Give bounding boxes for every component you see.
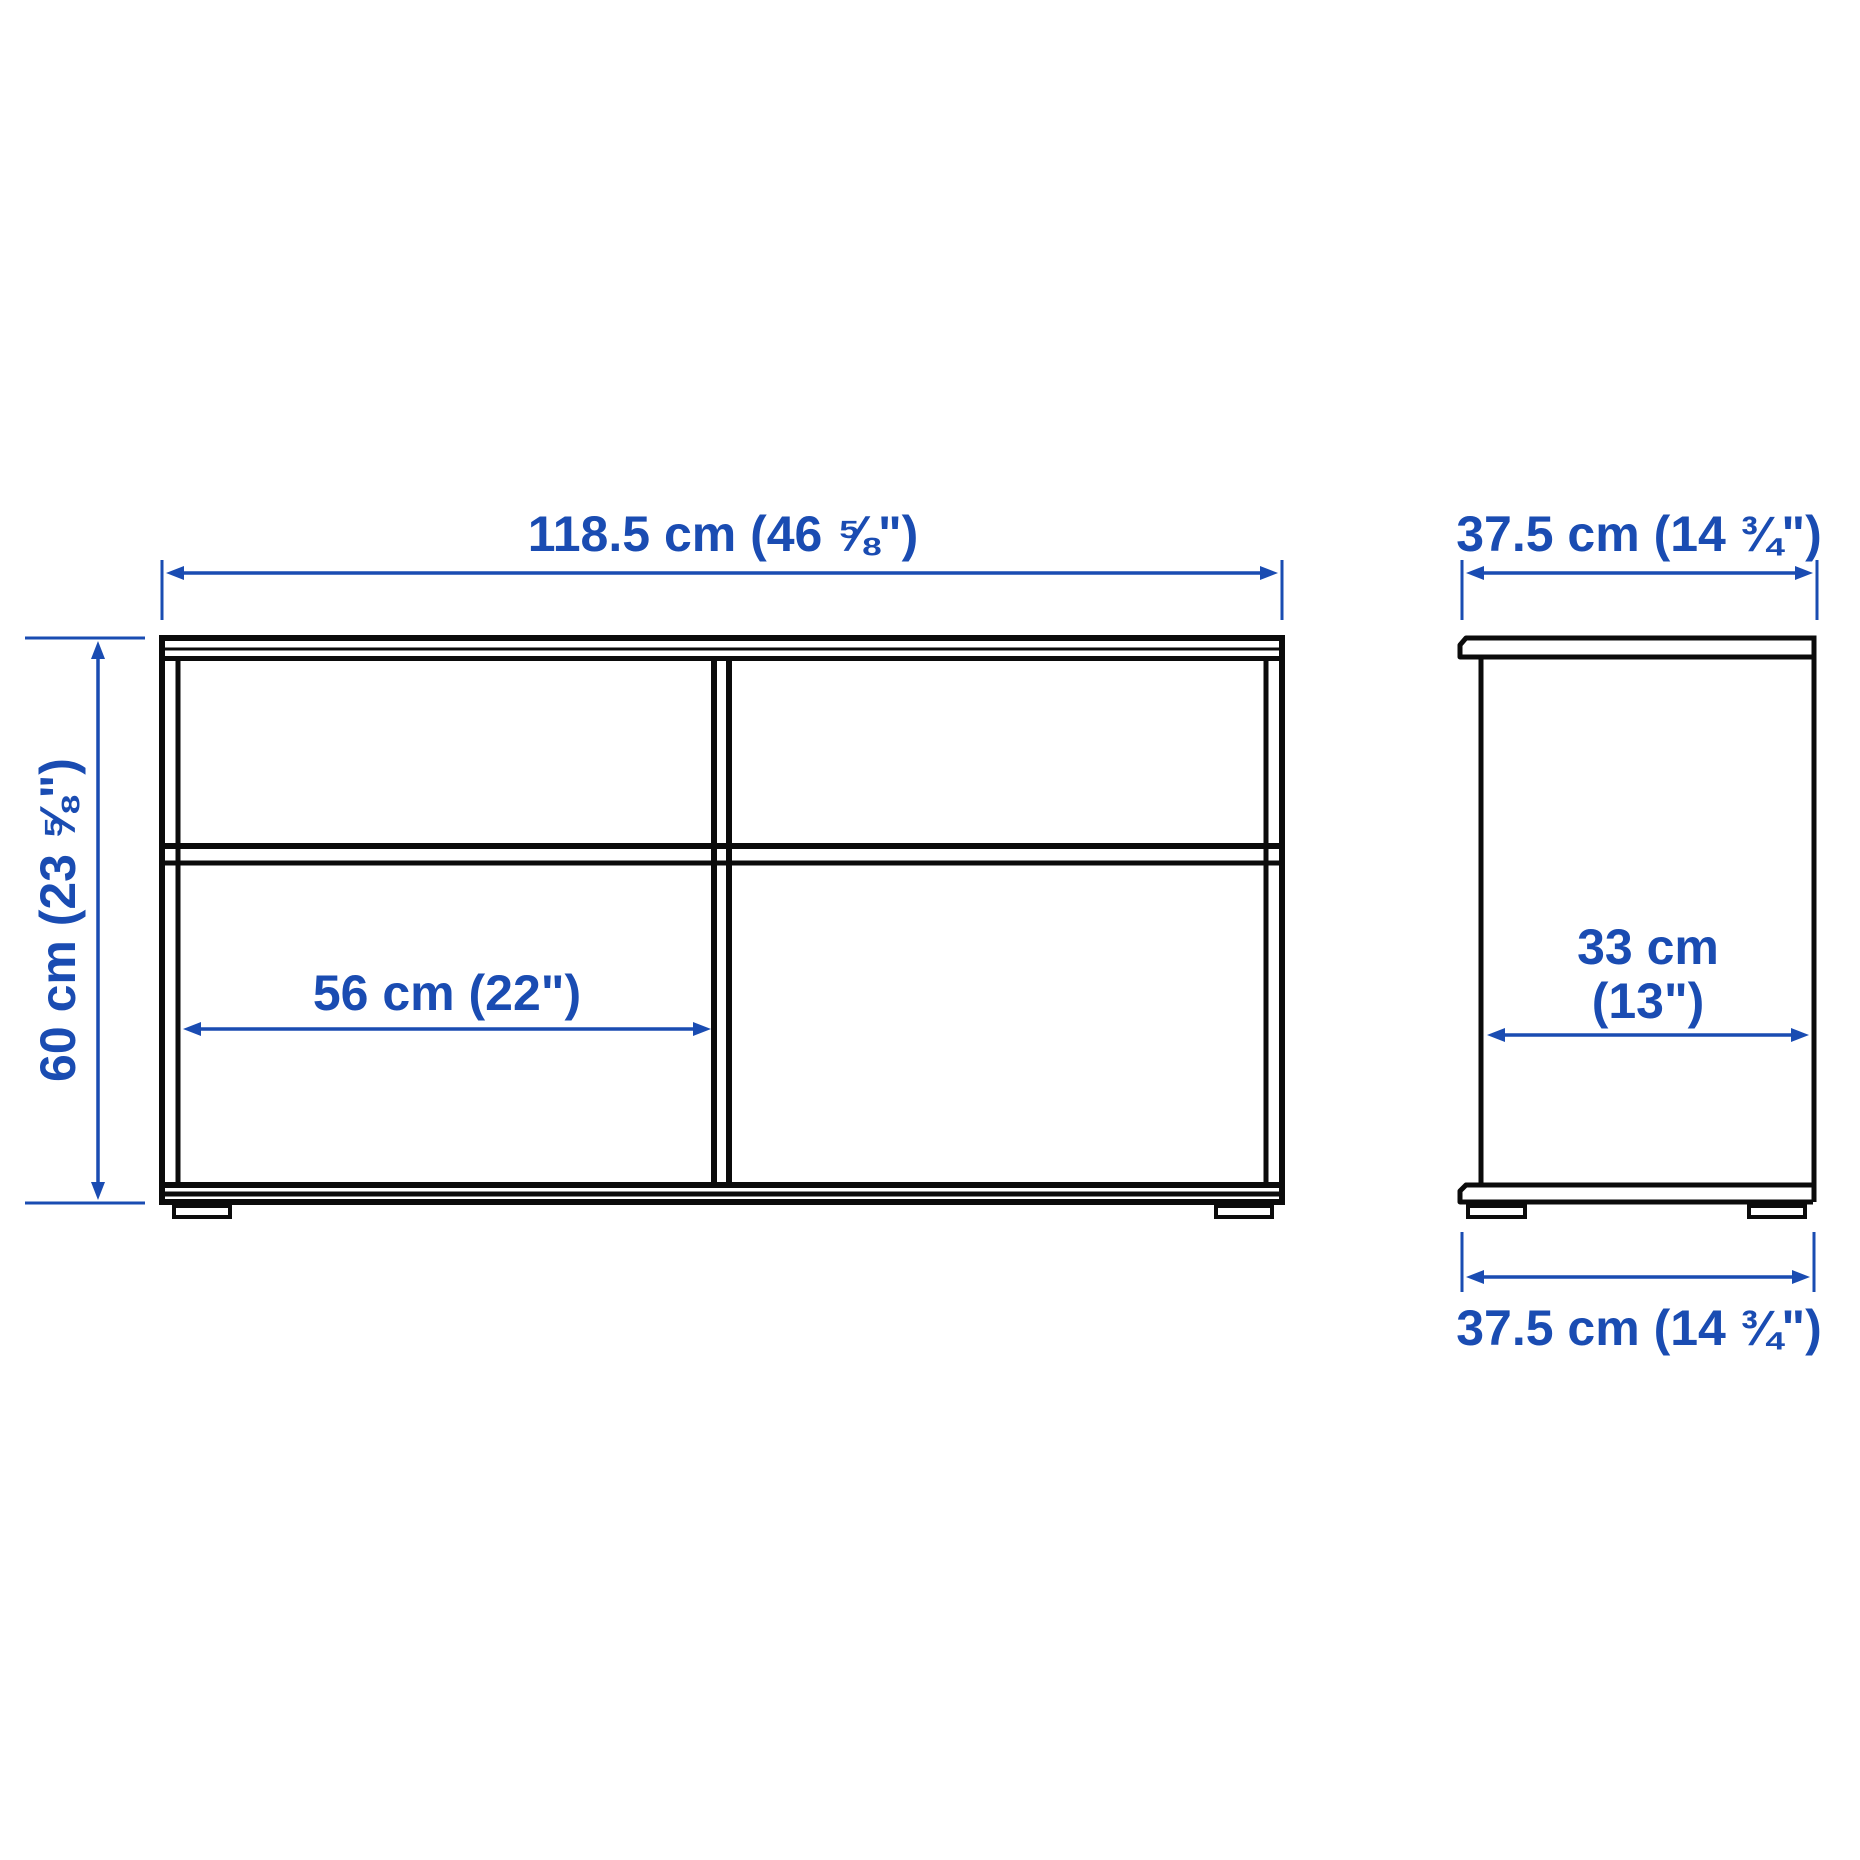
compartment-width-dimension-label: 56 cm (22")	[313, 965, 581, 1021]
compartment-width-dimension: 56 cm (22")	[183, 965, 711, 1036]
arrowhead	[693, 1022, 711, 1036]
arrowhead	[183, 1022, 201, 1036]
front-left-foot	[174, 1206, 230, 1217]
arrowhead	[1792, 1270, 1810, 1284]
front-height-dimension: 60 cm (23 ⅝")	[25, 638, 145, 1203]
front-outer-frame	[162, 638, 1282, 1202]
arrowhead	[1795, 566, 1813, 580]
arrowhead	[1466, 1270, 1484, 1284]
side-left-foot	[1468, 1206, 1525, 1217]
arrowhead	[1260, 566, 1278, 580]
side-top-panel	[1460, 638, 1813, 657]
side-bottom-width-dimension-label: 37.5 cm (14 ¾")	[1456, 1300, 1822, 1356]
arrowhead	[91, 641, 105, 659]
side-inner-depth-label-line2: (13")	[1592, 973, 1705, 1029]
front-view	[159, 638, 1285, 1217]
arrowhead	[91, 1182, 105, 1200]
side-right-foot	[1749, 1206, 1805, 1217]
arrowhead	[1487, 1028, 1505, 1042]
furniture-dimension-diagram: 118.5 cm (46 ⅝") 37.5 cm (14 ¾") 60 cm (…	[0, 0, 1860, 1860]
side-inner-depth-label-line1: 33 cm	[1577, 919, 1719, 975]
side-inner-depth-dimension: 33 cm (13")	[1487, 919, 1809, 1042]
side-top-width-dimension: 37.5 cm (14 ¾")	[1456, 506, 1822, 620]
front-height-dimension-label: 60 cm (23 ⅝")	[30, 758, 86, 1082]
front-width-dimension: 118.5 cm (46 ⅝")	[162, 506, 1282, 620]
arrowhead	[1466, 566, 1484, 580]
front-right-foot	[1216, 1206, 1272, 1217]
side-bottom-panel	[1460, 1185, 1813, 1202]
side-top-width-dimension-label: 37.5 cm (14 ¾")	[1456, 506, 1822, 562]
front-width-dimension-label: 118.5 cm (46 ⅝")	[528, 506, 919, 562]
diagram-canvas: 118.5 cm (46 ⅝") 37.5 cm (14 ¾") 60 cm (…	[0, 0, 1860, 1860]
arrowhead	[1791, 1028, 1809, 1042]
arrowhead	[166, 566, 184, 580]
side-bottom-width-dimension: 37.5 cm (14 ¾")	[1456, 1232, 1822, 1356]
